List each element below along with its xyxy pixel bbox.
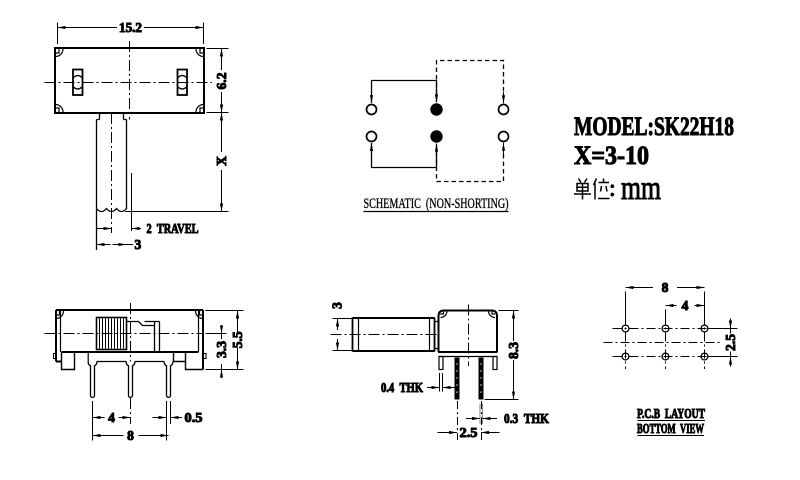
svg-text:0.4 THK: 0.4 THK [381,380,423,395]
svg-text:2 TRAVEL: 2 TRAVEL [147,221,199,236]
svg-text:4: 4 [108,410,115,425]
svg-text:6.2: 6.2 [214,72,229,89]
svg-text:MODEL:SK22H18: MODEL:SK22H18 [574,112,734,141]
svg-text:2.5: 2.5 [460,425,478,440]
svg-text::: : [609,176,616,202]
svg-text:X: X [214,156,229,166]
svg-text:3.3: 3.3 [214,341,229,358]
svg-text:BOTTOM VIEW: BOTTOM VIEW [637,421,704,436]
svg-text:0.5: 0.5 [185,410,203,425]
svg-text:X=3-10: X=3-10 [574,141,649,170]
svg-text:8: 8 [662,280,669,295]
svg-text:3: 3 [135,237,142,252]
svg-text:8: 8 [127,428,134,443]
svg-text:0.3 THK: 0.3 THK [504,411,549,426]
svg-text:3: 3 [329,302,344,309]
svg-text:15.2: 15.2 [119,20,142,35]
svg-text:SCHEMATIC (NON-SHORTING): SCHEMATIC (NON-SHORTING) [364,196,509,212]
svg-text:2.5: 2.5 [723,334,738,351]
svg-text:8.3: 8.3 [506,342,521,359]
svg-text:mm: mm [621,170,661,207]
svg-text:5.5: 5.5 [230,331,245,348]
svg-text:P.C.B LAYOUT: P.C.B LAYOUT [637,406,705,421]
svg-text:4: 4 [682,298,689,313]
